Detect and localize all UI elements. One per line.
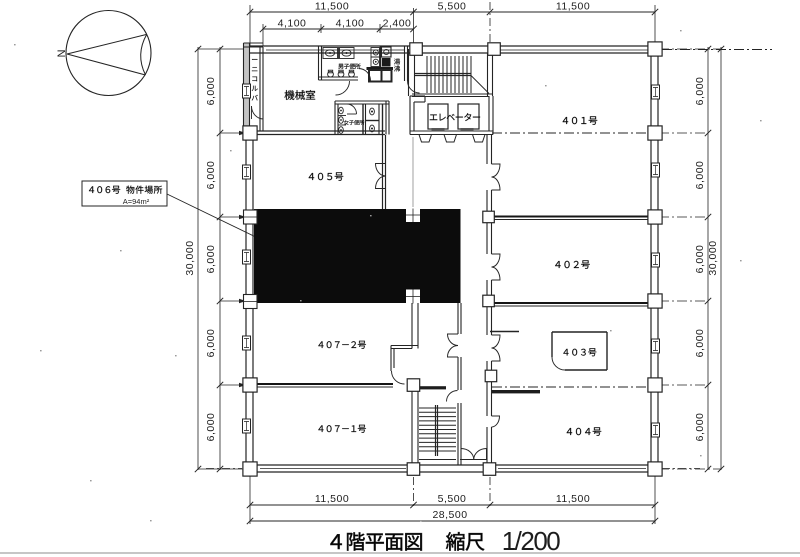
svg-text:4,100: 4,100 <box>336 18 365 30</box>
svg-text:N: N <box>55 50 67 58</box>
svg-text:A=94m²: A=94m² <box>123 197 150 206</box>
svg-text:30,000: 30,000 <box>184 240 196 275</box>
svg-text:6,000: 6,000 <box>205 413 217 442</box>
svg-text:6,000: 6,000 <box>205 245 217 274</box>
svg-text:1/200: 1/200 <box>502 526 561 556</box>
svg-text:5,500: 5,500 <box>438 493 467 505</box>
svg-text:6,000: 6,000 <box>694 413 706 442</box>
svg-text:6,000: 6,000 <box>694 245 706 274</box>
svg-text:11,500: 11,500 <box>556 493 590 505</box>
svg-text:6,000: 6,000 <box>694 161 706 190</box>
svg-text:6,000: 6,000 <box>205 161 217 190</box>
svg-text:30,000: 30,000 <box>707 240 719 275</box>
svg-text:28,500: 28,500 <box>432 509 467 521</box>
svg-text:11,500: 11,500 <box>556 1 590 13</box>
svg-text:6,000: 6,000 <box>694 329 706 358</box>
svg-text:11,500: 11,500 <box>315 1 349 13</box>
svg-text:2,400: 2,400 <box>383 18 412 30</box>
svg-text:5,500: 5,500 <box>438 1 467 13</box>
svg-text:11,500: 11,500 <box>315 493 349 505</box>
svg-text:4,100: 4,100 <box>278 18 307 30</box>
svg-text:6,000: 6,000 <box>205 329 217 358</box>
svg-text:6,000: 6,000 <box>205 77 217 106</box>
svg-text:6,000: 6,000 <box>694 77 706 106</box>
